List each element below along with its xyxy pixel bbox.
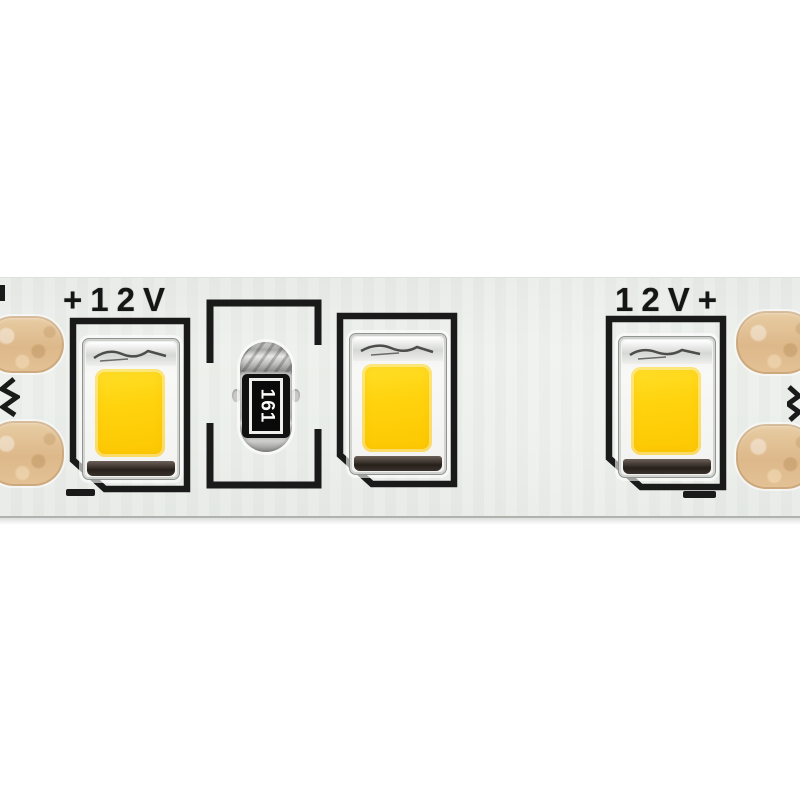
solder-pad-right-top [736, 311, 800, 374]
led-electrode [86, 342, 176, 366]
silkscreen-tick-mark [0, 285, 5, 301]
cut-mark-right-icon [787, 384, 800, 422]
resistor-code-box: 161 [249, 378, 283, 434]
led-package [82, 338, 180, 480]
photo-canvas: +12V 12V+ [0, 0, 800, 800]
led-electrode [353, 337, 443, 361]
led-phosphor [362, 364, 432, 452]
led-bottom-contact [354, 456, 442, 471]
led-package [349, 333, 447, 475]
led-electrode [622, 340, 712, 364]
minus-polarity-mark-right [683, 491, 716, 498]
silkscreen-label-12vplus: 12V+ [598, 281, 742, 319]
led-bottom-contact [623, 459, 711, 474]
solder-pad-left-top [0, 316, 64, 373]
led-package [618, 336, 716, 478]
cut-mark-left-icon [0, 376, 20, 418]
resistor-solder-bump-right [291, 389, 300, 402]
led-2 [336, 312, 458, 488]
silkscreen-label-plus12v: +12V [44, 281, 192, 319]
resistor-code: 161 [255, 389, 277, 424]
resistor-black-band: 161 [242, 374, 290, 438]
solder-pad-right-bottom [736, 424, 800, 489]
solder-pad-left-bottom [0, 421, 64, 486]
led-phosphor [631, 367, 701, 455]
led-3 [605, 315, 727, 491]
led-bottom-contact [87, 461, 175, 476]
resistor-body: 161 [240, 342, 292, 452]
led-phosphor [95, 369, 165, 457]
strip-shadow [0, 516, 800, 525]
led-1 [69, 317, 191, 493]
